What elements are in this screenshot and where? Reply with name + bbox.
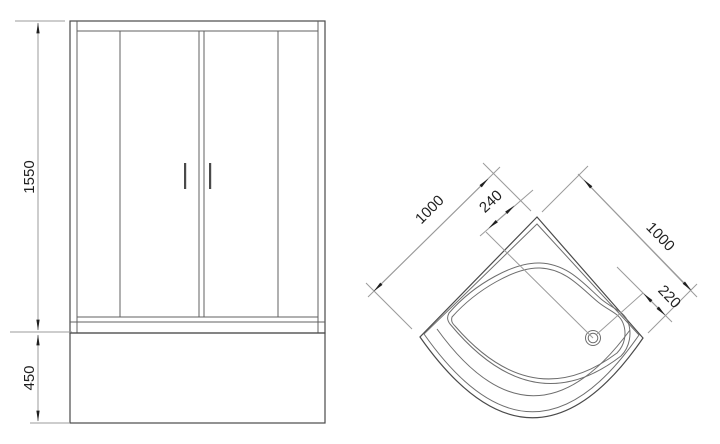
- dim-label-tray-height: 450: [21, 365, 38, 390]
- dimension-tray-height: 450: [21, 335, 70, 423]
- tray-rim-step-arc: [437, 329, 630, 396]
- leader-line-drain-side: [597, 293, 643, 334]
- dimension-drain-back: 240: [476, 187, 593, 338]
- door-handle-left: [184, 163, 186, 189]
- shower-door-frame: [70, 21, 325, 333]
- door-handle-right: [209, 163, 211, 189]
- tray-outer-edge: [420, 217, 643, 418]
- dim-label-right-side: 1000: [643, 219, 678, 255]
- glass-panels: [120, 31, 278, 317]
- extension-line-apex-right: [542, 166, 588, 212]
- tray-outline: [420, 217, 643, 418]
- technical-drawing-sheet: 1550 450 1000: [0, 0, 720, 444]
- dimension-left-side: 1000: [366, 163, 531, 329]
- dim-label-door-height: 1550: [21, 160, 38, 193]
- drawing-canvas: 1550 450 1000: [0, 0, 720, 444]
- extension-line-left-corner: [366, 283, 412, 329]
- basin-inner-line: [452, 268, 625, 379]
- leader-line-drain: [486, 232, 593, 338]
- dim-label-drain-back: 240: [476, 187, 506, 217]
- top-view: 1000 1000 240 220: [366, 163, 697, 418]
- dimension-door-height: 1550: [10, 21, 72, 332]
- dimension-line-right-1000: [584, 180, 691, 290]
- dim-label-left-side: 1000: [412, 192, 448, 228]
- tray-rim-line: [424, 224, 639, 412]
- dim-label-drain-side: 220: [654, 282, 684, 312]
- front-view: 1550 450: [10, 21, 325, 423]
- shower-tray-front-panel: [70, 333, 325, 423]
- frame-outer-rect: [70, 21, 325, 333]
